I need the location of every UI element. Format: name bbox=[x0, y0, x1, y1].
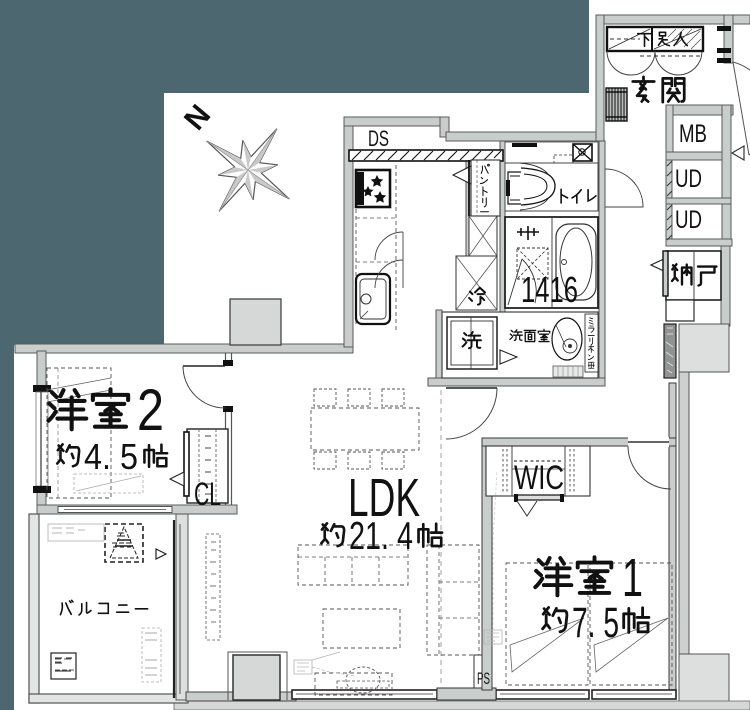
svg-text:1: 1 bbox=[622, 548, 643, 608]
svg-text:WIC: WIC bbox=[514, 459, 564, 497]
svg-text:21. 4: 21. 4 bbox=[349, 515, 413, 558]
svg-text:MB: MB bbox=[679, 120, 707, 148]
svg-text:2: 2 bbox=[137, 378, 164, 443]
svg-text:UD: UD bbox=[675, 165, 702, 193]
svg-text:7. 5: 7. 5 bbox=[572, 599, 619, 647]
svg-text:4. 5: 4. 5 bbox=[84, 436, 138, 477]
svg-text:PS: PS bbox=[477, 669, 490, 688]
svg-text:UD: UD bbox=[675, 206, 702, 234]
svg-text:DS: DS bbox=[368, 126, 389, 151]
svg-text:CL: CL bbox=[194, 476, 221, 512]
svg-text:1416: 1416 bbox=[521, 269, 578, 310]
